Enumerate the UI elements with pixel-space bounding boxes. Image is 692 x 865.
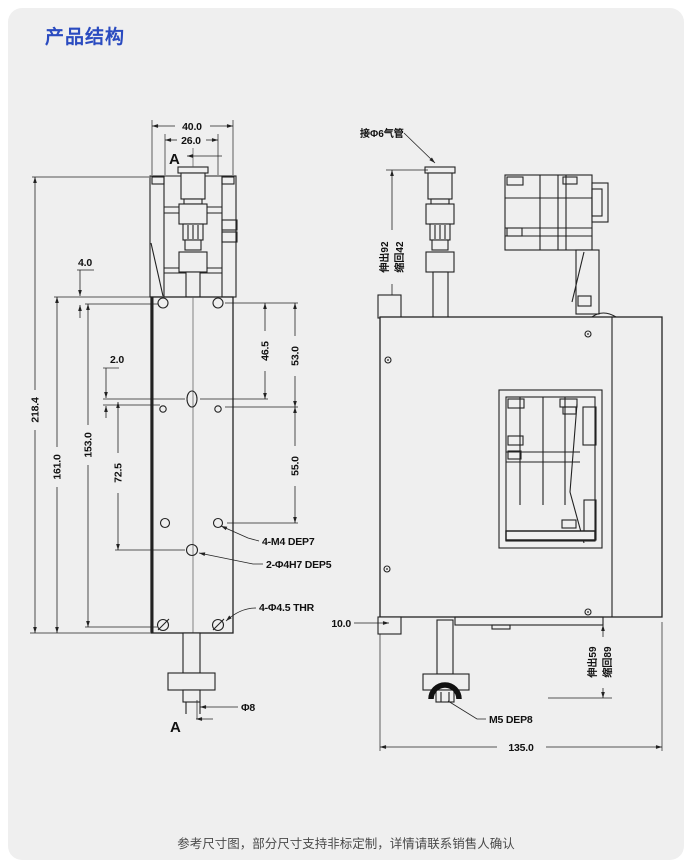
callout-air-fitting: 接Φ6气管 bbox=[360, 127, 404, 140]
pneumatic-fitting-side bbox=[425, 167, 455, 318]
dim-foot-block: 10.0 bbox=[331, 618, 351, 630]
output-shaft-front bbox=[168, 633, 215, 714]
callout-dowel-holes: 2-Φ4H7 DEP5 bbox=[266, 559, 332, 571]
section-label-top: A bbox=[169, 151, 180, 168]
motor-side bbox=[505, 175, 608, 314]
dim-top-offset: 4.0 bbox=[78, 257, 92, 269]
foot-block bbox=[378, 617, 401, 634]
footer-note: 参考尺寸图，部分尺寸支持非标定制，详情请联系销售人确认 bbox=[0, 833, 692, 852]
left-plate bbox=[150, 176, 164, 297]
product-structure-page: 产品结构 bbox=[0, 0, 692, 865]
dim-shaft-diameter: Φ8 bbox=[241, 702, 255, 714]
dim-upper-stroke-extend: 伸出92 bbox=[378, 241, 391, 274]
side-body bbox=[380, 317, 662, 617]
front-view: 40.0 26.0 A 4.0 2.0 bbox=[30, 120, 332, 736]
dim-depth: 135.0 bbox=[508, 742, 534, 754]
right-plate bbox=[222, 176, 236, 297]
dim-mid-offset: 2.0 bbox=[110, 354, 124, 366]
sensor-block bbox=[378, 295, 401, 318]
side-view: 接Φ6气管 伸出92 缩回42 bbox=[331, 127, 662, 754]
dim-lower-stroke-retract: 缩回89 bbox=[601, 646, 614, 678]
output-shaft-side bbox=[423, 620, 469, 702]
dim-row1-to-pin: 46.5 bbox=[260, 341, 272, 361]
dim-body-height: 161.0 bbox=[52, 454, 64, 480]
section-label-bottom: A bbox=[170, 719, 181, 736]
dim-hole-span-height: 153.0 bbox=[83, 432, 95, 458]
callout-through-holes: 4-Φ4.5 THR bbox=[259, 602, 315, 614]
dim-row1-to-row2: 53.0 bbox=[290, 346, 302, 366]
technical-drawing-svg: 40.0 26.0 A 4.0 2.0 bbox=[0, 0, 692, 865]
dim-inner-width: 26.0 bbox=[181, 135, 201, 147]
dim-outer-width: 40.0 bbox=[182, 121, 202, 133]
pneumatic-fitting-front bbox=[178, 167, 208, 297]
dim-upper-stroke-retract: 缩回42 bbox=[393, 241, 406, 273]
front-body-plate bbox=[151, 297, 233, 633]
dim-pin-hole-spacing: 72.5 bbox=[113, 463, 125, 483]
callout-tip-thread: M5 DEP8 bbox=[489, 714, 533, 726]
callout-mounting-holes: 4-M4 DEP7 bbox=[262, 536, 315, 548]
dim-row2-to-row3: 55.0 bbox=[290, 456, 302, 476]
dim-lower-stroke-extend: 伸出59 bbox=[586, 646, 599, 679]
dim-total-height: 218.4 bbox=[30, 397, 42, 423]
